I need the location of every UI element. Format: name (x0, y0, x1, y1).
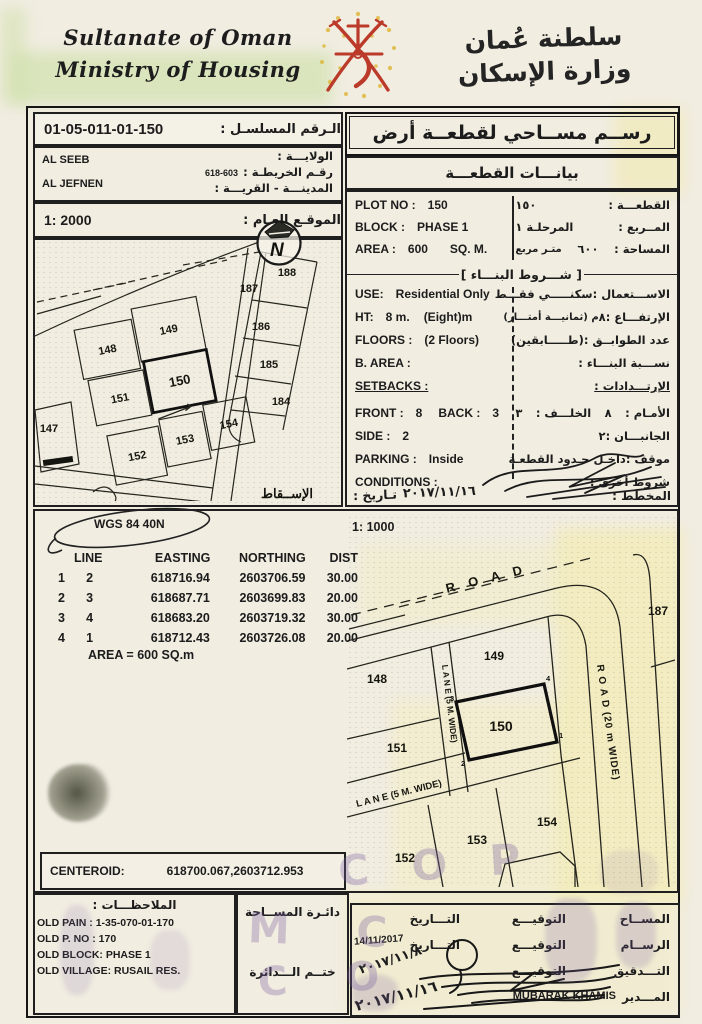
use-label: USE: (355, 287, 384, 301)
built-area-label: B. AREA : (355, 356, 411, 370)
svg-text:184: 184 (272, 396, 291, 408)
cell: 618712.43 (120, 628, 210, 648)
block-value: PHASE 1 (417, 220, 468, 234)
cell: 2 (86, 568, 120, 588)
back-label: BACK : (438, 406, 480, 420)
header-line-ministry: Ministry of Housing (50, 54, 306, 86)
date-label-ar: تـاريخ : (353, 487, 397, 504)
signatures-box: المســاح التوقيـــع التـــاريخ الرســام … (350, 903, 680, 1017)
area-value-ar: ٦٠٠ (577, 242, 598, 256)
panel-subtitle-ar: بيانـــات القطعـــة (445, 164, 578, 182)
block-label-ar: المــربع : (618, 220, 670, 234)
area-label-ar: المساحة : (614, 242, 670, 256)
datum-circle-scribble (40, 500, 220, 562)
svg-text:186: 186 (252, 321, 270, 333)
oman-emblem-icon (316, 10, 400, 104)
date-label-ar: التـــاريخ (410, 912, 460, 926)
wilayat-value-en: AL SEEB (42, 154, 89, 166)
map-number-label-ar: رقـم الخريطـة : (243, 165, 333, 179)
cell: 1 (86, 628, 120, 648)
cell: 2603719.32 (210, 608, 306, 628)
site-plan-right-strip (229, 252, 317, 442)
svg-text:151: 151 (387, 741, 407, 755)
svg-text:2: 2 (461, 759, 465, 768)
side-label-ar: الجانبـــان : (606, 429, 670, 443)
header-line-country: Sultanate of Oman (50, 22, 306, 54)
cell: 3 (58, 608, 86, 628)
svg-text:187: 187 (648, 604, 668, 618)
height-label: HT: (355, 310, 374, 324)
scanned-survey-document: Sultanate of Oman Ministry of Housing سل… (0, 0, 702, 1024)
use-value-ar: سكنـــــي فقـــط (495, 287, 593, 301)
block-row: BLOCK :PHASE 1 المــربع :المرحلـة ١ (347, 220, 677, 240)
front-value-ar: ٨ (605, 406, 612, 420)
notes-line-3: OLD BLOCK: PHASE 1 (35, 945, 234, 961)
use-label-ar: الاســـتعمال : (593, 287, 670, 301)
emblem-weapons (328, 20, 388, 90)
front-label-ar: الأمـام : (625, 406, 670, 420)
height-row: HT:8 m.(Eight)m الإرتفـــاع :٨م (ثمانيــ… (347, 310, 677, 330)
front-value: 8 (416, 406, 423, 420)
svg-text:150: 150 (168, 371, 192, 390)
floors-value-ar: (طـــــابقين) (511, 333, 584, 347)
back-label-ar: الخلـــف : (536, 406, 591, 420)
scan-tint (0, 8, 26, 104)
height-note-ar: م (ثمانيـــة أمتـــار) (503, 312, 598, 323)
height-label-ar: الإرتفـــاع : (606, 310, 670, 324)
svg-text:1: 1 (559, 731, 563, 740)
floors-label: FLOORS : (355, 333, 412, 347)
block-value-ar: المرحلـة ١ (515, 220, 573, 234)
side-value: 2 (402, 429, 409, 443)
height-value: 8 m. (386, 310, 410, 324)
plot-no-row: PLOT NO :150 القطعـــة :١٥٠ (347, 198, 677, 218)
svg-text:185: 185 (260, 359, 278, 371)
setbacks-row: SETBACKS : الإرتـــدادات : (347, 379, 677, 399)
notes-box: الملاحظـــات : OLD PAIN : 1-35-070-01-17… (33, 893, 236, 1015)
front-back-row: FRONT :8BACK :3 الأمـام :٨الخلـــف :٣ (347, 406, 677, 426)
setbacks-label-ar: الإرتـــدادات : (594, 379, 670, 393)
use-row: USE:Residential Only الاســـتعمال :سكنــ… (347, 287, 677, 307)
area-unit-ar: متـر مربع (515, 244, 561, 255)
svg-text:N: N (270, 240, 285, 261)
svg-text:153: 153 (467, 833, 487, 847)
notes-line-4: OLD VILLAGE: RUSAIL RES. (35, 961, 234, 977)
col-northing: NORTHING (210, 548, 305, 568)
svg-text:148: 148 (97, 343, 117, 358)
city-village-label-ar: المدينـــة - القريـــة : (214, 181, 333, 195)
svg-text:154: 154 (219, 417, 240, 432)
header-ar-ministry: وزارة الإسكان (428, 51, 661, 92)
area-value: 600 (408, 242, 428, 256)
building-conditions-title-ar: شـــروط البنـــاء (471, 267, 572, 282)
notes-line-1: OLD PAIN : 1-35-070-01-170 (35, 912, 234, 929)
detail-map-plot-labels: 148 149 150 151 152 153 154 187 (367, 604, 668, 865)
parking-label: PARKING : (355, 452, 417, 466)
block-label: BLOCK : (355, 220, 405, 234)
height-note: (Eight)m (424, 310, 473, 324)
cell: 2603726.08 (210, 628, 306, 648)
cell: 4 (58, 628, 86, 648)
svg-text:149: 149 (484, 649, 504, 663)
road-wide-label: R O A D (20 m WIDE) (594, 664, 621, 782)
svg-text:152: 152 (395, 851, 415, 865)
site-plan-box: 148 149 151 150 152 153 154 188 187 186 … (33, 238, 343, 507)
lane-horizontal-label: L A N E (5 M. WIDE) (355, 778, 443, 810)
side-label: SIDE : (355, 429, 390, 443)
serial-number-label: الـرقم المسلسـل : (212, 122, 341, 137)
svg-text:152: 152 (127, 449, 147, 464)
location-box: AL SEEB AL JEFNEN الولايـــة : رقـم الخر… (33, 146, 343, 202)
panel-title-box: رســم مســاحي لقطعــة أرض (345, 112, 679, 156)
plot-no-value-ar: ١٥٠ (515, 198, 536, 212)
svg-text:4: 4 (546, 674, 551, 683)
site-plan-left-block (72, 291, 258, 488)
site-scale-value: 1: 2000 (35, 212, 91, 228)
coordinates-table: LINE EASTING NORTHING DIST 12 618716.942… (58, 548, 358, 648)
cell: 1 (58, 568, 86, 588)
coordinates-row: 41 618712.432603726.0820.00 (58, 628, 358, 648)
area-unit: SQ. M. (450, 242, 487, 256)
notes-line-2: OLD P. NO : 170 (35, 929, 234, 945)
cell: 4 (86, 608, 120, 628)
height-value-ar: ٨ (599, 310, 606, 324)
scan-mark (43, 456, 74, 466)
date-handwritten-value: ٢٠١٧/١١/١٦ (403, 484, 476, 502)
centeroid-label: CENTEROID: (42, 864, 125, 878)
side-value-ar: ٢ (479, 429, 606, 443)
built-area-row: B. AREA : نســـبة البنـــاء : (347, 356, 677, 376)
detail-map-street-labels: R O A D R O A D (20 m WIDE) L A N E (5 M… (355, 561, 621, 810)
cell: 2 (58, 588, 86, 608)
detail-map: 148 149 150 151 152 153 154 187 3 4 1 2 … (347, 515, 675, 887)
back-value: 3 (492, 406, 499, 420)
ministry-header-en: Sultanate of Oman Ministry of Housing (50, 22, 306, 86)
surveyor-row: المســاح التوقيـــع التـــاريخ (352, 909, 678, 935)
built-area-label-ar: نســـبة البنـــاء : (578, 356, 670, 370)
floors-label-ar: عدد الطوابــق : (584, 333, 670, 347)
floors-row: FLOORS :(2 Floors) عدد الطوابــق :(طــــ… (347, 333, 677, 353)
serial-number-value: 01-05-011-01-150 (35, 121, 163, 138)
area-total-line: AREA = 600 SQ.m (88, 648, 194, 662)
cell: 3 (86, 588, 120, 608)
cell: 618716.94 (120, 568, 210, 588)
signature-label-ar: التوقيـــع (512, 912, 566, 926)
map-number-value: 618-603 (205, 168, 238, 178)
detail-scale-label: 1: 1000 (352, 520, 394, 534)
panel-subtitle-box: بيانـــات القطعـــة (345, 156, 679, 190)
front-label: FRONT : (355, 406, 404, 420)
use-value: Residential Only (396, 287, 490, 301)
ministry-header-ar: سلطنة عُمان وزارة الإسكان (427, 18, 661, 92)
cell: 618687.71 (120, 588, 210, 608)
projection-label-ar: الإســقاط (261, 486, 313, 501)
svg-text:187: 187 (240, 283, 258, 295)
svg-text:149: 149 (159, 323, 179, 338)
svg-text:147: 147 (40, 423, 58, 435)
centeroid-value: 618700.067,2603712.953 (125, 864, 304, 878)
plot-no-label-ar: القطعـــة : (608, 198, 670, 212)
plot-data-box: PLOT NO :150 القطعـــة :١٥٠ BLOCK :PHASE… (345, 190, 679, 507)
road-label: R O A D (444, 561, 528, 596)
director-signature-scribble (414, 933, 629, 1013)
plot-panel-date-row: تـاريخ : ٢٠١٧/١١/١٦ (353, 484, 476, 503)
village-value-en: AL JEFNEN (42, 178, 103, 190)
cell: 2603706.59 (210, 568, 306, 588)
serial-number-box: 01-05-011-01-150 الـرقم المسلسـل : (33, 112, 343, 146)
coordinates-row: 12 618716.942603706.5930.00 (58, 568, 358, 588)
draftsman-date-value: 14/11/2017 (354, 933, 404, 947)
cell: 2603699.83 (210, 588, 306, 608)
svg-text:150: 150 (489, 718, 513, 734)
svg-text:151: 151 (110, 391, 130, 406)
survey-department-stamp-box: دائـرة المســاحة ختــم الـــدائرة (236, 893, 349, 1015)
svg-text:153: 153 (175, 433, 195, 448)
svg-text:154: 154 (537, 815, 557, 829)
coordinates-row: 34 618683.202603719.3230.00 (58, 608, 358, 628)
director-role-ar: المـــدير (622, 990, 670, 1004)
north-compass-icon: N (250, 214, 308, 272)
surveyor-role-ar: المســاح (620, 912, 670, 926)
setbacks-label: SETBACKS : (355, 379, 428, 393)
centeroid-box: CENTEROID: 618700.067,2603712.953 (40, 852, 346, 890)
building-conditions-header: [ شـــروط البنـــاء ] (347, 264, 677, 284)
plot-no-value: 150 (428, 198, 448, 212)
site-plan-map: 148 149 151 150 152 153 154 188 187 186 … (35, 240, 337, 501)
plot-no-label: PLOT NO : (355, 198, 416, 212)
area-row: AREA :600SQ. M. المساحة :٦٠٠متـر مربع (347, 242, 677, 262)
back-value-ar: ٣ (515, 406, 522, 420)
survey-department-label-ar: دائـرة المســاحة (238, 895, 347, 919)
side-row: SIDE :2 الجانبـــان :٢ (347, 429, 677, 449)
coordinates-row: 23 618687.712603699.8320.00 (58, 588, 358, 608)
cell: 618683.20 (120, 608, 210, 628)
parking-value: Inside (429, 452, 464, 466)
area-label: AREA : (355, 242, 396, 256)
planner-label-ar: المخطط : (612, 489, 671, 503)
svg-text:148: 148 (367, 672, 387, 686)
floors-value: (2 Floors) (424, 333, 479, 347)
panel-title-ar: رســم مســاحي لقطعــة أرض (372, 122, 651, 144)
site-plan-plot-labels: 148 149 151 150 152 153 154 188 187 186 … (40, 267, 296, 466)
detail-map-box: 148 149 150 151 152 153 154 187 3 4 1 2 … (347, 515, 675, 887)
notes-header-ar: الملاحظـــات : (35, 895, 234, 912)
wilayat-label-ar: الولايـــة : (277, 149, 333, 163)
department-seal-label-ar: ختــم الـــدائرة (238, 919, 347, 979)
